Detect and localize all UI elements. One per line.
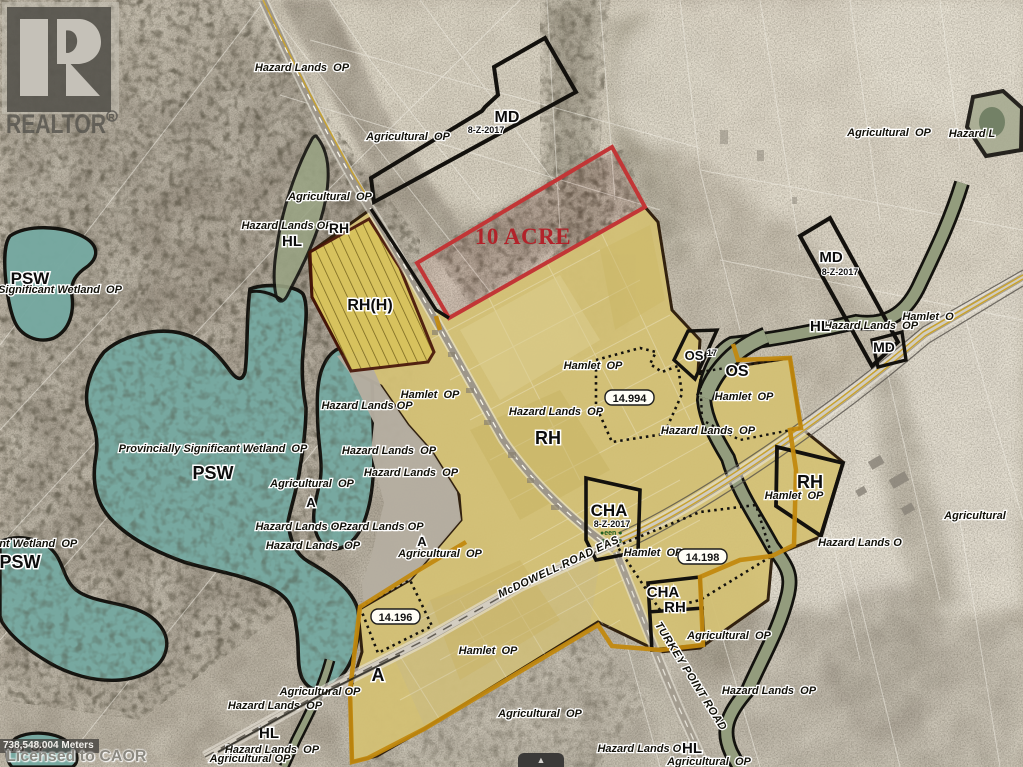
svg-text:17: 17 [707, 348, 717, 358]
svg-text:HL: HL [810, 318, 830, 335]
svg-text:Hamlet OP: Hamlet OP [401, 389, 460, 401]
svg-text:CHA: CHA [591, 501, 628, 520]
svg-text:Hamlet OP: Hamlet OP [564, 360, 623, 372]
svg-text:Hazard Lands OP: Hazard Lands OP [661, 425, 756, 437]
svg-text:REALTOR: REALTOR [6, 109, 106, 139]
svg-text:RH: RH [535, 428, 561, 448]
svg-text:Hazard L: Hazard L [949, 128, 996, 140]
svg-text:Agricultural OP: Agricultural OP [497, 708, 582, 720]
svg-text:cially Significant Wetland OP: cially Significant Wetland OP [0, 538, 78, 550]
svg-text:OS: OS [725, 363, 748, 380]
svg-text:PSW: PSW [192, 463, 233, 483]
svg-text:Agricultural OP: Agricultural OP [846, 127, 931, 139]
svg-text:Hazard Lands OP: Hazard Lands OP [255, 62, 350, 74]
svg-text:A: A [417, 534, 427, 549]
svg-text:RH: RH [664, 599, 686, 616]
svg-text:MD: MD [873, 339, 895, 355]
svg-text:MD: MD [819, 249, 842, 266]
svg-text:MD: MD [495, 109, 520, 126]
svg-text:Hazard Lands OP: Hazard Lands OP [266, 540, 361, 552]
svg-text:Agricultural OP: Agricultural OP [666, 756, 751, 767]
svg-text:Provincially Significant Wetla: Provincially Significant Wetland OP [119, 443, 308, 455]
svg-text:Hamlet OP: Hamlet OP [459, 645, 518, 657]
svg-text:8-Z-2017: 8-Z-2017 [822, 267, 859, 277]
svg-text:Agricultural OP: Agricultural OP [209, 753, 291, 765]
svg-text:Agricultural OP: Agricultural OP [287, 191, 372, 203]
svg-text:Hamlet OP: Hamlet OP [715, 391, 774, 403]
svg-text:Agricultural OP: Agricultural OP [397, 548, 482, 560]
svg-text:Agricultural: Agricultural [943, 510, 1007, 522]
svg-text:8-Z-2017: 8-Z-2017 [594, 519, 631, 529]
svg-text:10 ACRE: 10 ACRE [475, 224, 571, 249]
svg-text:Hazard Lands O: Hazard Lands O [818, 537, 902, 549]
svg-text:R: R [109, 112, 115, 122]
svg-text:Hazard Lands OP: Hazard Lands OP [364, 467, 459, 479]
svg-text:Agricultural OP: Agricultural OP [269, 478, 354, 490]
svg-text:Hamlet O: Hamlet O [902, 311, 954, 323]
svg-text:Hazard Lands OP: Hazard Lands OP [321, 400, 413, 412]
svg-text:OS: OS [685, 348, 704, 363]
svg-text:8-Z-2017: 8-Z-2017 [468, 125, 505, 135]
svg-text:Hazard Lands OP: Hazard Lands OP [255, 521, 347, 533]
svg-text:Hazard Lands OP: Hazard Lands OP [241, 220, 333, 232]
svg-text:PSW: PSW [11, 269, 51, 288]
svg-text:RH: RH [797, 472, 823, 492]
svg-text:14.994: 14.994 [613, 393, 648, 405]
svg-text:14.198: 14.198 [686, 552, 720, 564]
svg-text:RH(H): RH(H) [347, 297, 392, 314]
svg-text:Agricultural OP: Agricultural OP [365, 131, 450, 143]
svg-text:Hazard Lands OP: Hazard Lands OP [597, 743, 689, 755]
svg-text:HL: HL [682, 740, 702, 757]
svg-text:Hazard Lands OP: Hazard Lands OP [509, 406, 604, 418]
svg-text:14.196: 14.196 [379, 612, 413, 624]
svg-text:Hazard Lands OP: Hazard Lands OP [342, 445, 437, 457]
svg-text:Agricultural OP: Agricultural OP [686, 630, 771, 642]
svg-text:Hazard Lands OP: Hazard Lands OP [722, 685, 817, 697]
svg-text:Hamlet OP: Hamlet OP [624, 547, 683, 559]
svg-text:PSW: PSW [0, 552, 41, 572]
svg-text:RH: RH [329, 220, 349, 236]
svg-text:A: A [306, 495, 316, 510]
svg-text:HL: HL [282, 233, 302, 250]
